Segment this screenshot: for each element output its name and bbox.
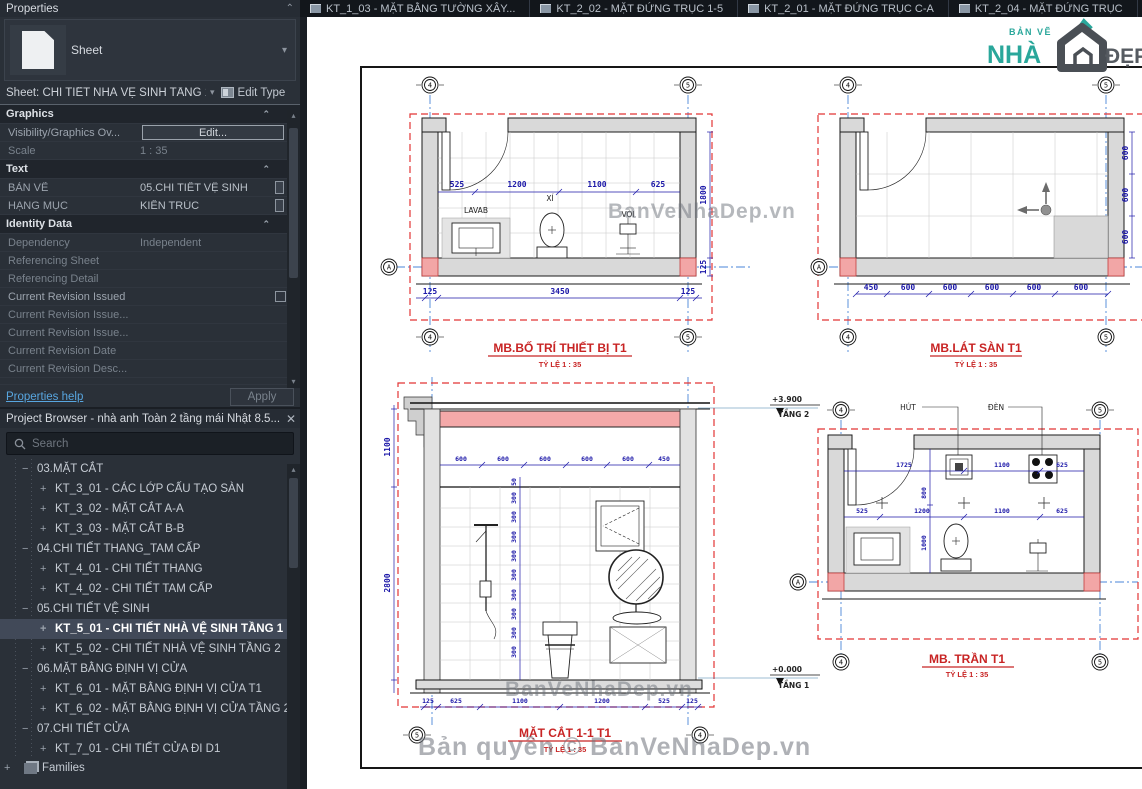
tree-expander-icon[interactable]: − [22, 463, 37, 475]
svg-text:125: 125 [699, 260, 708, 275]
tree-expander-icon[interactable]: + [4, 762, 19, 774]
svg-text:300: 300 [510, 569, 518, 581]
toilet-fixture [941, 524, 971, 571]
faucet-fixture [616, 218, 640, 254]
svg-text:625: 625 [1056, 507, 1068, 515]
drawing-scale: TỶ LỆ 1 : 35 [946, 670, 989, 679]
sheet-tab-icon [540, 4, 551, 13]
view-tab-label: KT_2_04 - MẶT ĐỨNG TRỤC [975, 3, 1123, 15]
svg-text:800: 800 [920, 487, 928, 499]
tree-expander-icon[interactable]: + [40, 683, 55, 695]
top-dimension-chain: 600 600 600 600 600 450 [440, 455, 680, 468]
sink-fixture [442, 218, 510, 258]
banvenhadep-logo: BẢN VẼ NHÀ ĐẸP [979, 20, 1142, 74]
svg-text:1725: 1725 [896, 461, 912, 469]
mirror-icon [609, 550, 663, 615]
apply-button[interactable]: Apply [230, 388, 294, 406]
svg-text:125: 125 [423, 287, 438, 296]
tree-item-label: KT_7_01 - CHI TIẾT CỬA ĐI D1 [55, 743, 220, 755]
svg-text:5: 5 [1098, 407, 1102, 415]
bottom-dimension-chain: 125 3450 125 [416, 287, 702, 301]
fixture-label: XÍ [546, 194, 553, 203]
drawing-canvas[interactable]: BẢN VẼ NHÀ ĐẸP [300, 17, 1142, 789]
svg-text:300: 300 [510, 550, 518, 562]
property-value[interactable]: 1 : 35 [140, 145, 286, 157]
fixture-label: VÒI [621, 210, 634, 219]
browser-search[interactable] [6, 432, 294, 455]
property-row[interactable]: HẠNG MỤC KIẾN TRÚC ⌃ [0, 197, 300, 215]
svg-text:300: 300 [510, 531, 518, 543]
type-label: Sheet [71, 43, 102, 57]
svg-text:3450: 3450 [550, 287, 569, 296]
svg-text:1200: 1200 [594, 697, 610, 705]
browser-tree-item[interactable]: + KT_5_01 - CHI TIẾT NHÀ VỆ SINH TẦNG 1 [0, 619, 300, 639]
svg-text:4: 4 [428, 82, 432, 90]
chevron-down-icon[interactable]: ▾ [282, 45, 287, 56]
property-row[interactable]: Graphics ⌃ [0, 105, 300, 124]
svg-text:300: 300 [510, 608, 518, 620]
property-label: Dependency [0, 237, 140, 249]
svg-text:600: 600 [581, 455, 593, 463]
browser-tree-item[interactable]: + KT_3_02 - MẶT CẮT A-A [0, 499, 300, 519]
tree-expander-icon[interactable]: − [22, 723, 37, 735]
property-row[interactable]: Dependency Independent ⌃ [0, 234, 300, 252]
svg-text:525: 525 [450, 180, 465, 189]
scrollbar-thumb[interactable] [289, 478, 298, 568]
svg-text:600: 600 [943, 283, 958, 292]
svg-text:5: 5 [1104, 82, 1108, 90]
tree-item-label: KT_5_01 - CHI TIẾT NHÀ VỆ SINH TẦNG 1 [55, 623, 283, 635]
section-chevron-icon[interactable]: ⌃ [262, 219, 270, 230]
column [1108, 258, 1124, 276]
tile-dimension-chain: 50 300 300 300 300 300 300 300 300 300 [510, 477, 520, 680]
interior-dimension-chain: 525 1200 1100 625 [438, 180, 680, 195]
browser-tree-item[interactable]: − 06.MẶT BẰNG ĐỊNH VỊ CỬA [0, 659, 300, 679]
tree-item-label: 06.MẶT BẰNG ĐỊNH VỊ CỬA [37, 663, 187, 675]
left-dimension-chain: 1100 2800 [383, 405, 397, 693]
edit-type-button[interactable]: Edit Type [221, 87, 286, 99]
families-node[interactable]: + Families [0, 759, 300, 777]
tree-expander-icon[interactable]: + [40, 643, 55, 655]
svg-text:125: 125 [681, 287, 696, 296]
exhaust-fan-icon [946, 455, 972, 479]
properties-header: Properties ⌃ [0, 0, 300, 17]
view-tab[interactable]: KT_2_01 - MẶT ĐỨNG TRỤC C-A [738, 0, 949, 17]
browser-tree-item[interactable]: − 04.CHI TIẾT THANG_TAM CẤP [0, 539, 300, 559]
browser-tree-item[interactable]: − 07.CHI TIẾT CỬA [0, 719, 300, 739]
svg-text:600: 600 [497, 455, 509, 463]
properties-help-link[interactable]: Properties help [6, 391, 83, 403]
browser-tree-item[interactable]: + KT_7_01 - CHI TIẾT CỬA ĐI D1 [0, 739, 300, 759]
ceiling-label: ĐÈN [988, 403, 1004, 412]
browser-tree-item[interactable]: − 05.CHI TIẾT VỆ SINH [0, 599, 300, 619]
svg-text:1100: 1100 [512, 697, 528, 705]
svg-text:625: 625 [450, 697, 462, 705]
view-tab-label: KT_1_03 - MẶT BẰNG TƯỜNG XÂY... [326, 3, 515, 15]
tree-item-label: 03.MẶT CẮT [37, 463, 103, 475]
drawing-scale: TỶ LỆ 1 : 35 [544, 745, 587, 754]
tree-expander-icon[interactable]: + [40, 503, 55, 515]
tree-expander-icon[interactable]: − [22, 543, 37, 555]
property-value[interactable]: 05.CHI TIẾT VỆ SINH [140, 182, 286, 194]
svg-text:525: 525 [658, 697, 670, 705]
property-row[interactable]: Scale 1 : 35 ⌃ [0, 142, 300, 160]
parameter-tag-icon[interactable] [275, 181, 284, 194]
search-icon [14, 438, 26, 450]
property-label: Current Revision Issue... [0, 309, 140, 321]
logo-suffix-text: ĐẸP [1105, 45, 1142, 68]
tree-expander-icon[interactable]: + [40, 563, 55, 575]
sheet-selector-row: Sheet: CHI TIẾT NHÀ VỆ SINH TẦNG 1 ▾ Edi… [0, 81, 300, 105]
logo-main-text: NHÀ [987, 40, 1041, 69]
svg-text:300: 300 [510, 646, 518, 658]
property-value[interactable]: KIẾN TRÚC [140, 200, 286, 212]
drawing-title: MB.LÁT SÀN T1 [930, 340, 1022, 355]
svg-text:125: 125 [422, 697, 434, 705]
browser-tree-item[interactable]: + KT_5_02 - CHI TIẾT NHÀ VỆ SINH TẦNG 2 [0, 639, 300, 659]
chevron-down-icon[interactable]: ▾ [210, 87, 215, 98]
svg-text:300: 300 [510, 511, 518, 523]
column [422, 258, 438, 276]
browser-tree-item[interactable]: + KT_6_02 - MẶT BẰNG ĐỊNH VỊ CỬA TẦNG 2 [0, 699, 300, 719]
property-label: Referencing Detail [0, 273, 140, 285]
svg-text:625: 625 [651, 180, 666, 189]
scroll-up-icon[interactable]: ▴ [291, 110, 295, 122]
column [1084, 573, 1100, 591]
tree-item-label: 07.CHI TIẾT CỬA [37, 723, 129, 735]
faucet-fixture [1026, 539, 1048, 571]
svg-text:625: 625 [1056, 461, 1068, 469]
property-label: Text [4, 163, 145, 175]
toilet-fixture [537, 213, 567, 258]
walls [416, 118, 702, 284]
tree-item-label: KT_6_02 - MẶT BẰNG ĐỊNH VỊ CỬA TẦNG 2 [55, 703, 290, 715]
property-row[interactable]: Identity Data ⌃ [0, 215, 300, 234]
view-tab-label: KT_2_01 - MẶT ĐỨNG TRỤC C-A [764, 3, 934, 15]
property-label: Current Revision Issue... [0, 327, 140, 339]
property-row[interactable]: Current Revision Issue... ⌃ [0, 306, 300, 324]
svg-text:4: 4 [698, 732, 702, 740]
browser-tree-item[interactable]: + KT_3_03 - MẶT CẮT B-B [0, 519, 300, 539]
svg-text:5: 5 [1098, 659, 1102, 667]
door-swing-icon [860, 132, 926, 190]
drawing-scale: TỶ LỆ 1 : 35 [539, 360, 582, 369]
window-icon [596, 501, 644, 551]
svg-text:450: 450 [658, 455, 670, 463]
drawing-title: MB. TRẦN T1 [929, 651, 1005, 666]
tree-expander-icon[interactable]: + [40, 483, 55, 495]
svg-text:600: 600 [1074, 283, 1089, 292]
tree-item-label: KT_3_02 - MẶT CẮT A-A [55, 503, 184, 515]
drawing-equipment-plan: LAVAB XÍ VÒI 525 1200 1100 625 1800 125 [380, 70, 760, 375]
property-label: Current Revision Date [0, 345, 140, 357]
tree-expander-icon[interactable]: + [40, 583, 55, 595]
svg-text:600: 600 [455, 455, 467, 463]
property-label: Current Revision Desc... [0, 363, 140, 375]
property-label: Current Revision Issued [0, 291, 140, 303]
svg-text:525: 525 [856, 507, 868, 515]
logo-house-icon [1061, 27, 1103, 68]
tree-item-label: KT_5_02 - CHI TIẾT NHÀ VỆ SINH TẦNG 2 [55, 643, 281, 655]
property-label: Scale [0, 145, 140, 157]
column [840, 258, 856, 276]
properties-panel: Properties ⌃ Sheet ▾ Sheet: CHI TIẾT NHÀ… [0, 0, 300, 408]
drawing-section-1-1: 600 600 600 600 600 450 1100 2800 50 300… [380, 375, 820, 770]
tree-expander-icon[interactable]: + [40, 703, 55, 715]
tree-expander-icon[interactable]: − [22, 603, 37, 615]
drawing-title: MẶT CẮT 1-1 T1 [519, 725, 611, 740]
svg-text:1100: 1100 [994, 461, 1010, 469]
tree-item-label: KT_4_01 - CHI TIẾT THANG [55, 563, 203, 575]
browser-tree-item[interactable]: + KT_6_01 - MẶT BẰNG ĐỊNH VỊ CỬA T1 [0, 679, 300, 699]
right-dimension-chain: 600 600 600 [1121, 132, 1135, 258]
project-browser-title: Project Browser - nhà anh Toàn 2 tầng má… [6, 413, 280, 425]
svg-text:2800: 2800 [383, 573, 392, 592]
svg-text:1200: 1200 [914, 507, 930, 515]
view-tab[interactable]: KT_2_02 - MẶT ĐỨNG TRỤC 1-5 [530, 0, 738, 17]
tree-expander-icon[interactable]: + [40, 743, 55, 755]
view-tab-label: KT_2_02 - MẶT ĐỨNG TRỤC 1-5 [556, 3, 723, 15]
svg-text:450: 450 [864, 283, 879, 292]
vanity-cabinet [610, 612, 666, 663]
svg-text:300: 300 [510, 627, 518, 639]
clipped-row [0, 378, 300, 385]
property-row[interactable]: Current Revision Desc... ⌃ [0, 360, 300, 378]
svg-text:4: 4 [839, 407, 843, 415]
logo-small-text: BẢN VẼ [1009, 26, 1052, 37]
sheet-icon [10, 25, 66, 75]
families-icon [24, 763, 37, 774]
tree-item-label: KT_3_01 - CÁC LỚP CẤU TẠO SÀN [55, 483, 244, 495]
left-dock: Properties ⌃ Sheet ▾ Sheet: CHI TIẾT NHÀ… [0, 0, 300, 789]
svg-text:4: 4 [428, 334, 432, 342]
column [828, 573, 844, 591]
properties-footer: Properties help Apply [0, 385, 300, 408]
tree-item-label: 05.CHI TIẾT VỆ SINH [37, 603, 150, 615]
property-row[interactable]: BẢN VẼ 05.CHI TIẾT VỆ SINH ⌃ [0, 179, 300, 197]
browser-tree-item[interactable]: + KT_4_02 - CHI TIẾT TAM CẤP [0, 579, 300, 599]
search-input[interactable] [32, 438, 232, 450]
property-row[interactable]: Current Revision Issue... ⌃ [0, 324, 300, 342]
svg-text:300: 300 [510, 492, 518, 504]
svg-text:600: 600 [985, 283, 1000, 292]
properties-title: Properties [6, 3, 58, 15]
floor [416, 680, 702, 689]
sink-fixture [846, 527, 910, 573]
svg-text:600: 600 [1121, 188, 1130, 203]
fixture-label: LAVAB [464, 206, 488, 215]
svg-text:125: 125 [686, 697, 698, 705]
tree-item-label: 04.CHI TIẾT THANG_TAM CẤP [37, 543, 200, 555]
scroll-down-icon[interactable]: ▾ [291, 376, 295, 388]
svg-text:5: 5 [415, 732, 419, 740]
property-row[interactable]: Referencing Detail ⌃ [0, 270, 300, 288]
svg-text:600: 600 [901, 283, 916, 292]
drawing-scale: TỶ LỆ 1 : 35 [955, 360, 998, 369]
property-label: BẢN VẼ [0, 182, 140, 194]
svg-text:600: 600 [539, 455, 551, 463]
svg-text:1000: 1000 [920, 535, 928, 551]
tree-expander-icon[interactable]: + [40, 523, 55, 535]
sheet-tab-icon [310, 4, 321, 13]
wall-cut [424, 409, 440, 693]
property-label: HẠNG MỤC [0, 200, 140, 212]
drawing-floor-tiling-plan: 600 600 600 450 600 600 600 600 600 4 [810, 70, 1142, 375]
drawing-title: MB.BỐ TRÍ THIẾT BỊ T1 [493, 340, 627, 355]
project-browser-panel: Project Browser - nhà anh Toàn 2 tầng má… [0, 407, 300, 789]
svg-text:1100: 1100 [587, 180, 606, 189]
property-row[interactable]: Visibility/Graphics Ov... Edit... ⌃ [0, 124, 300, 142]
svg-text:4: 4 [846, 334, 850, 342]
tree-item-label: KT_6_01 - MẶT BẰNG ĐỊNH VỊ CỬA T1 [55, 683, 262, 695]
grid-bubbles: 4 5 A 4 5 [811, 77, 1120, 345]
project-browser-header: Project Browser - nhà anh Toàn 2 tầng má… [0, 409, 300, 428]
ceiling-light-icon [1029, 455, 1057, 483]
property-value[interactable]: Edit... [142, 125, 284, 140]
browser-tree-item[interactable]: − 03.MẶT CẮT [0, 459, 300, 479]
scroll-up-icon[interactable]: ▴ [291, 464, 295, 476]
svg-text:600: 600 [1027, 283, 1042, 292]
browser-tree-item[interactable]: + KT_3_01 - CÁC LỚP CẤU TẠO SÀN [0, 479, 300, 499]
sheet-tab-icon [959, 4, 970, 13]
property-label: Visibility/Graphics Ov... [0, 127, 140, 139]
right-dimension-chain: 1800 125 [699, 132, 713, 276]
bottom-dimension-chain: 450 600 600 600 600 600 [853, 283, 1111, 297]
floor-drain-icon [1017, 182, 1108, 258]
svg-text:5: 5 [686, 82, 690, 90]
property-row[interactable]: Text ⌃ [0, 160, 300, 179]
beam [438, 411, 690, 427]
svg-text:4: 4 [839, 659, 843, 667]
ceiling-cross-markers [876, 497, 1050, 509]
property-label: Identity Data [4, 218, 167, 230]
bottom-dimension-chain: 125 625 1100 1200 525 125 [420, 697, 702, 710]
svg-text:4: 4 [846, 82, 850, 90]
checkbox[interactable] [275, 291, 286, 302]
parameter-tag-icon[interactable] [275, 199, 284, 212]
tree-item-label: KT_4_02 - CHI TIẾT TAM CẤP [55, 583, 213, 595]
sheet-tab-icon [748, 4, 759, 13]
walls [834, 118, 1130, 284]
browser-tree-item[interactable]: + KT_4_01 - CHI TIẾT THANG [0, 559, 300, 579]
svg-text:1200: 1200 [507, 180, 526, 189]
door-swing-icon [848, 449, 914, 505]
type-selector[interactable]: Sheet ▾ [4, 19, 296, 81]
view-tab[interactable]: KT_1_03 - MẶT BẰNG TƯỜNG XÂY... [300, 0, 530, 17]
property-row[interactable]: Referencing Sheet ⌃ [0, 252, 300, 270]
svg-text:600: 600 [622, 455, 634, 463]
svg-text:600: 600 [1121, 146, 1130, 161]
families-label: Families [42, 762, 85, 774]
revit-window: Properties ⌃ Sheet ▾ Sheet: CHI TIẾT NHÀ… [0, 0, 1142, 789]
close-icon[interactable]: ✕ [280, 412, 296, 426]
ceiling-label: HÚT [900, 403, 916, 412]
property-row[interactable]: Current Revision Date ⌃ [0, 342, 300, 360]
sheet-selector[interactable]: Sheet: CHI TIẾT NHÀ VỆ SINH TẦNG 1 [6, 87, 206, 99]
tree-expander-icon[interactable]: − [22, 663, 37, 675]
section-chevron-icon[interactable]: ⌃ [262, 109, 270, 120]
svg-text:1100: 1100 [383, 437, 392, 456]
scrollbar-thumb[interactable] [289, 128, 298, 278]
properties-grid: Graphics ⌃ Visibility/Graphics Ov... Edi… [0, 105, 300, 378]
svg-text:5: 5 [1104, 334, 1108, 342]
tree-expander-icon[interactable]: + [40, 623, 55, 635]
browser-tree: − 03.MẶT CẮT + KT_3_01 - CÁC LỚP CẤU TẠO… [0, 459, 300, 759]
view-tab[interactable]: KT_2_04 - MẶT ĐỨNG TRỤC [949, 0, 1138, 17]
toilet-section [543, 622, 577, 678]
property-row[interactable]: Current Revision Issued ⌃ [0, 288, 300, 306]
view-tab-bar: KT_1_03 - MẶT BẰNG TƯỜNG XÂY... KT_2_02 … [300, 0, 1142, 17]
property-value[interactable]: Independent [140, 237, 286, 249]
svg-text:5: 5 [686, 334, 690, 342]
property-label: Referencing Sheet [0, 255, 140, 267]
svg-text:600: 600 [1121, 230, 1130, 245]
properties-scrollbar[interactable]: ▴ ▾ [287, 110, 300, 388]
property-label: Graphics [4, 108, 158, 120]
svg-text:1800: 1800 [699, 185, 708, 204]
wall-cut [680, 409, 696, 693]
browser-scrollbar[interactable]: ▴ [287, 464, 300, 789]
svg-text:1100: 1100 [994, 507, 1010, 515]
edit-type-icon [221, 87, 234, 98]
section-chevron-icon[interactable]: ⌃ [262, 164, 270, 175]
drawing-ceiling-plan: HÚT ĐÈN 1725 110 [790, 395, 1142, 685]
svg-text:300: 300 [510, 589, 518, 601]
tree-item-label: KT_3_03 - MẶT CẮT B-B [55, 523, 184, 535]
collapse-chevron-icon[interactable]: ⌃ [286, 3, 294, 14]
svg-text:50: 50 [510, 478, 518, 486]
column [680, 258, 696, 276]
